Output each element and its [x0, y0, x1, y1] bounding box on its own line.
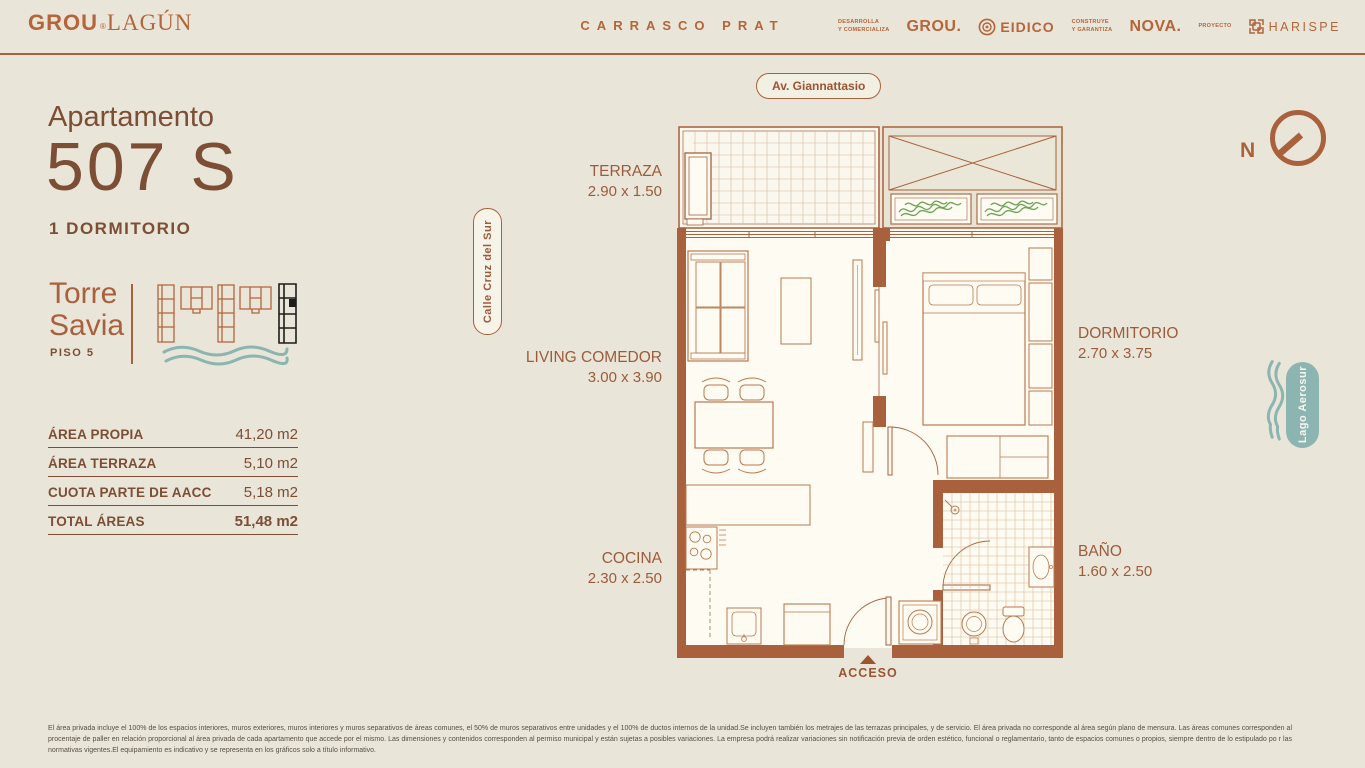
legal-disclaimer: El área privada incluye el 100% de los e…	[48, 723, 1292, 756]
room-dims: 2.90 x 1.50	[500, 182, 662, 202]
north-compass-icon	[1267, 107, 1329, 169]
site-plan-highlighted-tower	[279, 284, 296, 343]
area-row-value: 41,20 m2	[235, 426, 298, 443]
apartment-number: 507 S	[46, 128, 239, 206]
room-name: BAÑO	[1078, 542, 1152, 562]
eidico-logo-text: EIDICO	[1000, 19, 1054, 35]
lake-label: Lago Aerosur	[1286, 362, 1319, 448]
floor-label: PISO 5	[50, 347, 94, 359]
area-row-label: TOTAL ÁREAS	[48, 514, 145, 529]
planter	[891, 194, 971, 224]
terrace-ac-unit	[685, 153, 711, 225]
washing-machine	[899, 601, 941, 644]
room-label-cocina: COCINA 2.30 x 2.50	[500, 549, 662, 589]
unit-location-marker	[289, 299, 296, 307]
builder-logo: NOVA.	[1129, 18, 1181, 36]
area-row-label: ÁREA TERRAZA	[48, 456, 156, 471]
lake-label-text: Lago Aerosur	[1297, 366, 1309, 443]
apartment-type: 1 DORMITORIO	[49, 219, 191, 239]
table-row: ÁREA PROPIA 41,20 m2	[48, 419, 298, 448]
room-label-terraza: TERRAZA 2.90 x 1.50	[500, 162, 662, 202]
sofa	[688, 251, 748, 361]
site-plan-key	[152, 278, 304, 370]
room-dims: 2.70 x 3.75	[1078, 344, 1178, 364]
access-label: ACCESO	[823, 666, 913, 680]
bathroom-vanity	[1029, 547, 1054, 587]
room-label-dormitorio: DORMITORIO 2.70 x 3.75	[1078, 324, 1178, 364]
water-waves	[164, 347, 287, 364]
wardrobe-column	[1029, 248, 1052, 425]
room-name: COCINA	[500, 549, 662, 569]
table-row: ÁREA TERRAZA 5,10 m2	[48, 448, 298, 477]
closet	[947, 436, 1048, 478]
area-row-value: 5,18 m2	[244, 484, 298, 501]
room-dims: 2.30 x 2.50	[500, 569, 662, 589]
eidico-logo: EIDICO	[978, 18, 1054, 36]
project-role-label: PROYECTO	[1198, 23, 1231, 31]
area-row-value: 51,48 m2	[235, 513, 298, 530]
hall-cabinet	[863, 422, 873, 472]
room-dims: 3.00 x 3.90	[440, 368, 662, 388]
areas-table: ÁREA PROPIA 41,20 m2 ÁREA TERRAZA 5,10 m…	[48, 419, 298, 535]
builder-role-label: CONSTRUYE Y GARANTIZA	[1072, 19, 1113, 35]
site-plan-towers	[158, 285, 271, 342]
room-label-living: LIVING COMEDOR 3.00 x 3.90	[440, 348, 662, 388]
street-label-top: Av. Giannattasio	[756, 73, 881, 99]
street-label-left-text: Calle Cruz del Sur	[482, 220, 494, 323]
north-letter: N	[1240, 139, 1255, 163]
developer-logo: GROU.	[906, 18, 961, 36]
area-row-value: 5,10 m2	[244, 455, 298, 472]
harispe-logo: HARISPE	[1249, 19, 1341, 34]
bed	[923, 273, 1025, 425]
room-name: LIVING COMEDOR	[440, 348, 662, 368]
room-name: DORMITORIO	[1078, 324, 1178, 344]
harispe-logo-text: HARISPE	[1269, 20, 1341, 34]
floorplan-sheet: GROU®LAGÚN CARRASCO PRAT DESARROLLA Y CO…	[0, 0, 1365, 768]
table-row-total: TOTAL ÁREAS 51,48 m2	[48, 506, 298, 535]
harispe-grid-icon	[1249, 19, 1264, 34]
tower-divider-line	[131, 284, 133, 364]
room-dims: 1.60 x 2.50	[1078, 562, 1152, 582]
access-arrow-icon	[860, 655, 876, 664]
eidico-circle-icon	[978, 18, 996, 36]
planter	[977, 194, 1057, 224]
toilet	[1003, 607, 1024, 642]
lake-waves	[1264, 358, 1288, 454]
street-label-left: Calle Cruz del Sur	[473, 208, 502, 335]
room-label-bano: BAÑO 1.60 x 2.50	[1078, 542, 1152, 582]
area-row-label: ÁREA PROPIA	[48, 427, 143, 442]
header-bar: GROU®LAGÚN CARRASCO PRAT DESARROLLA Y CO…	[0, 0, 1365, 55]
developer-role-label: DESARROLLA Y COMERCIALIZA	[838, 19, 889, 35]
partner-logos: DESARROLLA Y COMERCIALIZA GROU. EIDICO C…	[838, 0, 1341, 53]
area-row-label: CUOTA PARTE DE AACC	[48, 485, 212, 500]
tower-name: Torre Savia	[49, 278, 159, 342]
table-row: CUOTA PARTE DE AACC 5,18 m2	[48, 477, 298, 506]
room-name: TERRAZA	[500, 162, 662, 182]
floor-plan-drawing	[677, 120, 1063, 660]
